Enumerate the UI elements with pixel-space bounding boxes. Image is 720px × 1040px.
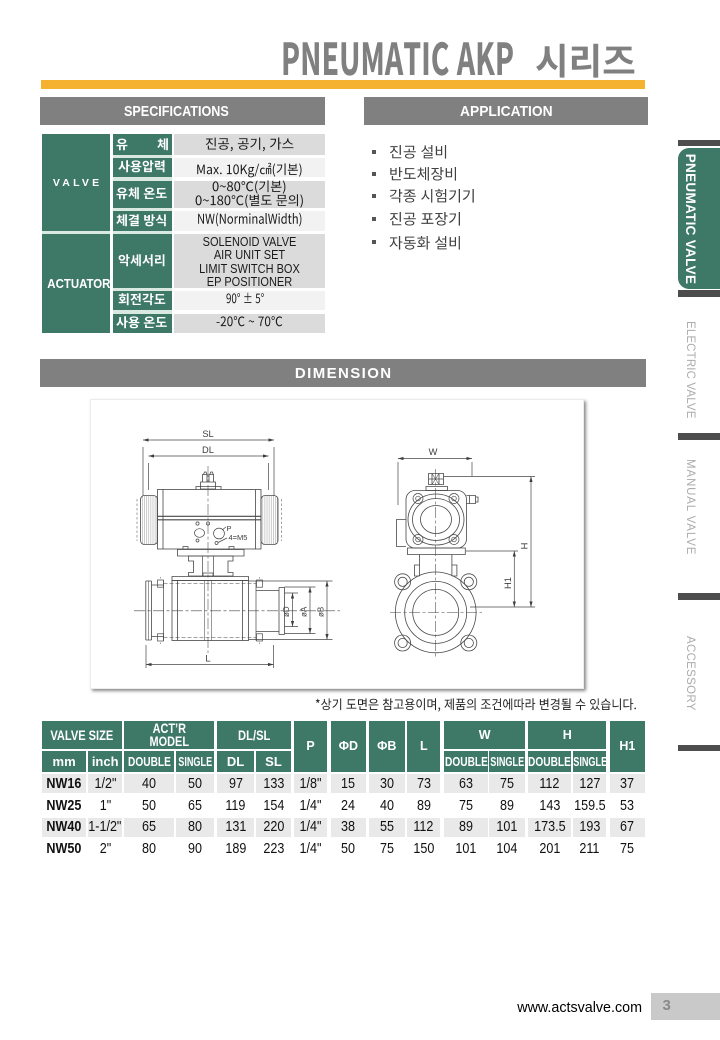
svg-text:øB: øB: [317, 607, 326, 617]
svg-text:øD: øD: [282, 606, 291, 617]
svg-text:H: H: [520, 543, 530, 550]
svg-text:W: W: [429, 447, 438, 457]
svg-text:H1: H1: [503, 577, 513, 589]
svg-text:øA: øA: [300, 606, 309, 617]
svg-text:DL: DL: [202, 445, 214, 455]
svg-text:P: P: [227, 524, 232, 533]
svg-text:L: L: [205, 654, 210, 664]
svg-text:4=M5: 4=M5: [229, 533, 248, 542]
svg-text:SL: SL: [202, 429, 213, 439]
